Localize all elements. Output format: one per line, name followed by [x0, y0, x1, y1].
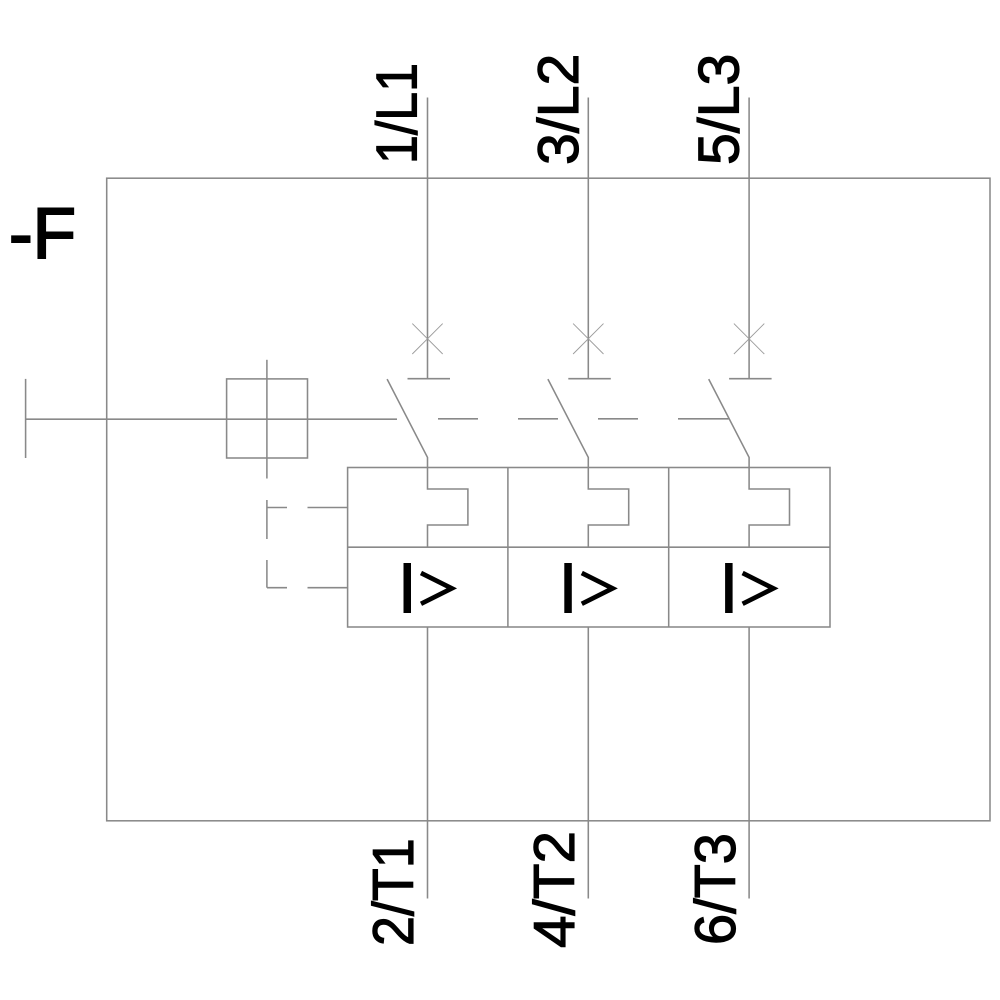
- svg-text:6/T3: 6/T3: [684, 833, 748, 945]
- svg-text:4/T2: 4/T2: [523, 831, 587, 948]
- svg-text:3/L2: 3/L2: [527, 54, 591, 165]
- svg-text:2/T1: 2/T1: [362, 838, 426, 946]
- svg-text:1/L1: 1/L1: [365, 63, 429, 164]
- svg-text:5/L3: 5/L3: [688, 54, 752, 165]
- svg-text:-F: -F: [9, 195, 76, 274]
